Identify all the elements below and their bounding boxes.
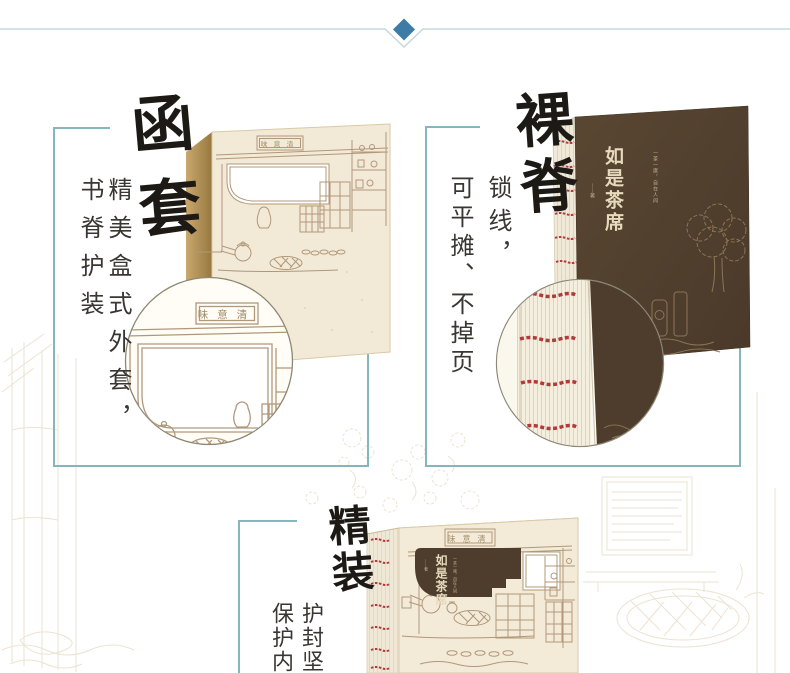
- desc-slipcase-2: 书脊护装: [73, 177, 108, 329]
- desc-hardcover-2: 保护内: [264, 602, 296, 673]
- desc-naked-spine-2: 可平摊、不掉页: [443, 175, 478, 378]
- hardcover-book: 味意清: [367, 518, 578, 673]
- cover-title: 如是茶席: [600, 146, 627, 234]
- heading-hardcover: 精装: [315, 502, 382, 598]
- book-promo-page: 味意清: [0, 0, 790, 673]
- slipcase-plaque-text: 味意清: [261, 140, 300, 149]
- magnifier-slipcase: 味意清: [126, 278, 297, 458]
- hardcover-subtitle: 一茶一席，自在人间: [452, 557, 458, 593]
- diamond-icon: [393, 18, 415, 40]
- hardcover-author: ——著: [423, 559, 429, 571]
- desc-naked-spine-1: 锁线，: [481, 175, 516, 274]
- magnifier-plaque-text: 味意清: [198, 308, 257, 321]
- cover-author: ——著: [589, 183, 596, 198]
- desc-hardcover-1: 护封坚: [294, 602, 326, 673]
- hardcover-title: 如是茶席: [433, 554, 450, 606]
- top-divider: [0, 18, 790, 47]
- magnifier-spine: [496, 279, 664, 447]
- hardcover-plaque-text: 味意清: [448, 534, 493, 544]
- cover-subtitle: 一茶一席，自在人间: [652, 150, 659, 204]
